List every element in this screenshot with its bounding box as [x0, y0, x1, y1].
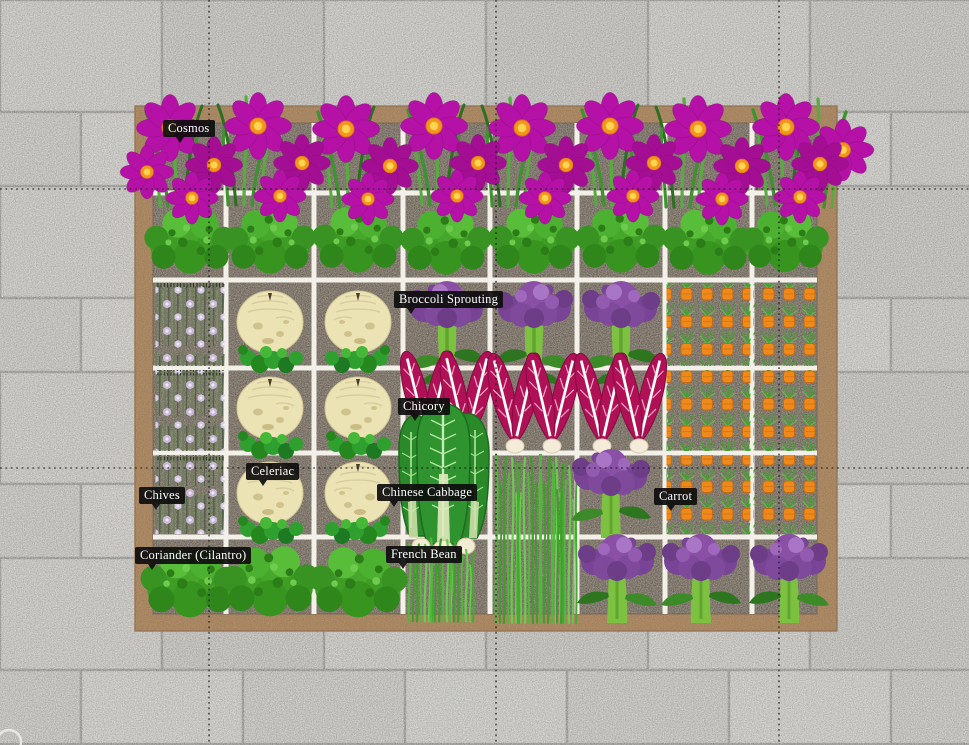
plant-label-french-bean[interactable]: French Bean — [386, 546, 462, 563]
plant-label-chives[interactable]: Chives — [139, 487, 185, 504]
plant-label-chinese-cabbage[interactable]: Chinese Cabbage — [377, 484, 477, 501]
plant-label-celeriac[interactable]: Celeriac — [246, 463, 299, 480]
plant-label-carrot[interactable]: Carrot — [654, 488, 697, 505]
garden-planner-canvas: Cosmos Broccoli Sprouting Chicory Celeri… — [0, 0, 969, 745]
plan-scene — [0, 0, 969, 745]
plant-label-cosmos[interactable]: Cosmos — [163, 120, 215, 137]
plant-label-chicory[interactable]: Chicory — [398, 398, 450, 415]
chinese-cabbage-plant[interactable] — [399, 404, 489, 558]
plant-label-coriander[interactable]: Coriander (Cilantro) — [135, 547, 251, 564]
plant-label-broccoli-sprouting[interactable]: Broccoli Sprouting — [394, 291, 503, 308]
